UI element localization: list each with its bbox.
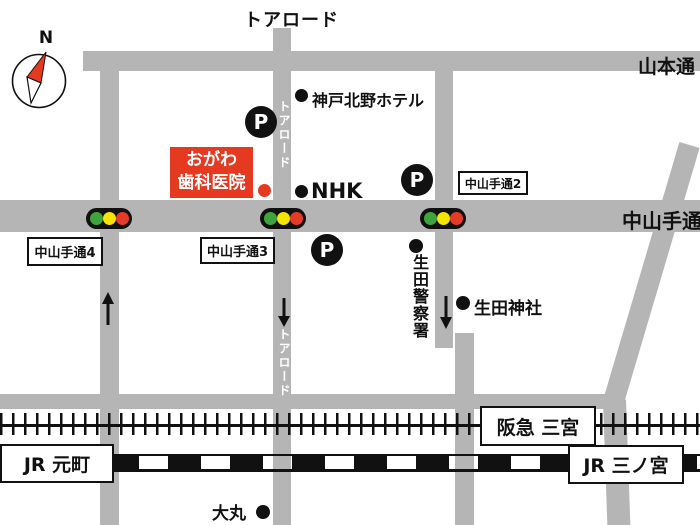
daimaru-label: 大丸 <box>212 499 246 524</box>
parking-icon-east: P <box>401 164 433 196</box>
compass-icon <box>8 48 70 112</box>
traffic-light-west <box>86 208 132 229</box>
yamamoto-street-label: 山本通 <box>638 52 695 79</box>
clinic-entrance-dot <box>258 184 271 197</box>
signal-yellow-lamp <box>103 212 116 225</box>
signal-red-lamp <box>116 212 129 225</box>
block-label-nakayamate3: 中山手通3 <box>200 237 275 264</box>
hotel-label: 神戸北野ホテル <box>312 87 424 111</box>
clinic-name-line2: 歯科医院 <box>170 172 253 195</box>
block-label-nakayamate4: 中山手通4 <box>27 237 103 266</box>
road-diagonal-upper <box>604 142 699 401</box>
signal-red-lamp <box>290 212 303 225</box>
parking-icon-north: P <box>245 106 277 138</box>
police-dot <box>409 239 423 253</box>
signal-green-lamp <box>90 212 103 225</box>
hotel-dot <box>295 89 308 102</box>
clinic-destination-box: おがわ 歯科医院 <box>170 147 253 198</box>
nhk-label: NHK <box>311 179 362 203</box>
shrine-label: 生田神社 <box>474 294 542 319</box>
tor-street-label-upper: トアロード <box>274 100 290 170</box>
station-jr-sannomiya: JR 三ノ宮 <box>568 445 684 484</box>
traffic-light-east <box>420 208 466 229</box>
station-hankyu-sannomiya: 阪急 三宮 <box>480 406 596 446</box>
daimaru-dot <box>256 505 270 519</box>
police-label: 生田警察署 <box>405 254 427 339</box>
one-way-down-arrow-icon-tor <box>276 298 292 328</box>
tor-road-title: トアロード <box>244 6 339 32</box>
map-canvas: N トアロード 山本通 中山手通 トアロード トアロード 中山手通4 中山手通3… <box>0 0 700 525</box>
nhk-dot <box>295 185 308 198</box>
traffic-light-center <box>260 208 306 229</box>
signal-red-lamp <box>450 212 463 225</box>
road-yamamoto <box>83 51 700 71</box>
tor-street-label-lower: トアロード <box>274 328 290 398</box>
one-way-up-arrow-icon <box>100 292 116 326</box>
signal-green-lamp <box>264 212 277 225</box>
signal-yellow-lamp <box>277 212 290 225</box>
signal-yellow-lamp <box>437 212 450 225</box>
block-label-nakayamate2: 中山手通2 <box>458 171 528 195</box>
clinic-name-line1: おがわ <box>170 149 253 172</box>
signal-green-lamp <box>424 212 437 225</box>
station-jr-motomachi: JR 元町 <box>0 444 114 483</box>
shrine-dot <box>456 296 470 310</box>
parking-icon-south: P <box>311 234 343 266</box>
nakayamate-street-label: 中山手通 <box>622 205 700 234</box>
compass-north-label: N <box>36 28 56 48</box>
one-way-down-arrow-icon-east <box>438 296 454 330</box>
